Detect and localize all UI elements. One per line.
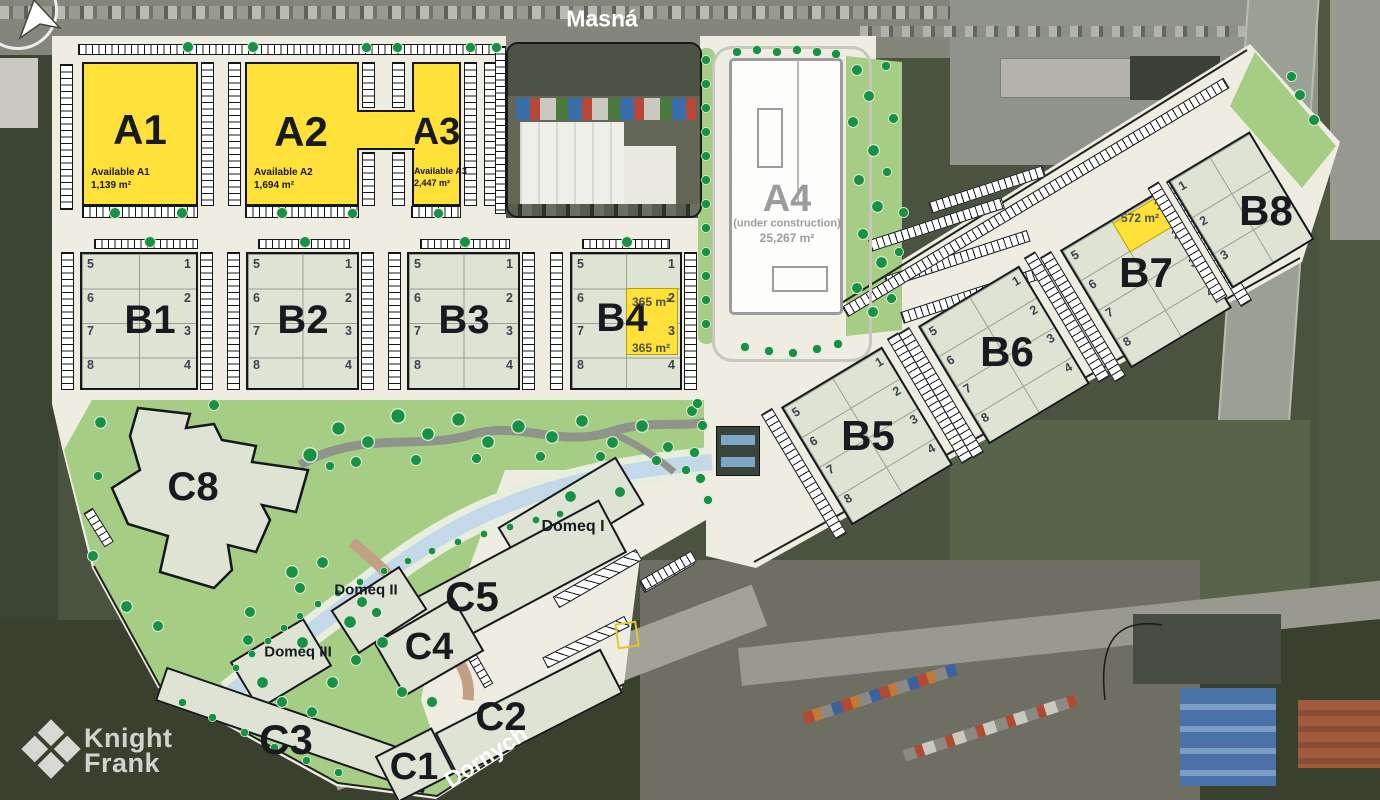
parking-a1-a2-1	[201, 62, 214, 206]
unit-number: 6	[414, 291, 421, 305]
building-b5-label: B5	[841, 415, 895, 457]
gate-highlight-box	[614, 621, 639, 650]
unit-number: 3	[506, 324, 513, 338]
building-a2-a3-connector	[357, 110, 415, 150]
building-c5-label: C5	[445, 576, 499, 618]
unit-number: 3	[1218, 248, 1231, 264]
building-c4-label: C4	[405, 628, 454, 666]
parking-b1-right	[200, 252, 213, 390]
building-b3-label: B3	[438, 300, 489, 340]
unit-number: 6	[1086, 276, 1099, 292]
a2-availability: Available A2 1,694 m²	[254, 166, 313, 192]
unit-number: 3	[184, 324, 191, 338]
unit-number: 2	[890, 383, 903, 399]
unit-number: 8	[1120, 333, 1133, 349]
unit-number: 3	[1044, 331, 1057, 347]
building-domeq3-label: Domeq III	[264, 645, 332, 660]
building-b2-label: B2	[277, 300, 328, 340]
unit-number: 2	[1027, 302, 1040, 318]
aerial-cutout	[506, 42, 702, 218]
unit-number: 8	[841, 490, 854, 506]
unit-number: 6	[577, 291, 584, 305]
unit-number: 7	[824, 462, 837, 478]
building-b6-label: B6	[980, 331, 1034, 373]
a4-inner-bay-2	[772, 266, 828, 292]
retention-structure	[716, 426, 760, 476]
unit-number: 1	[873, 354, 886, 370]
unit-number: 6	[944, 352, 957, 368]
unit-number: 3	[668, 324, 675, 338]
building-a4-label: A4	[763, 180, 812, 218]
unit-number: 5	[789, 404, 802, 420]
logo-line-2: Frank	[84, 751, 172, 776]
unit-number: 1	[506, 257, 513, 271]
parking-a2-a3-l1	[362, 152, 375, 206]
unit-number: 4	[506, 358, 513, 372]
unit-number: 2	[506, 291, 513, 305]
unit-number: 5	[926, 323, 939, 339]
building-a2-label: A2	[274, 111, 328, 153]
unit-number: 6	[807, 433, 820, 449]
unit-number: 5	[414, 257, 421, 271]
building-a4-status: (under construction)	[733, 219, 841, 230]
unit-number: 7	[1103, 305, 1116, 321]
unit-number: 5	[253, 257, 260, 271]
a3-availability: Available A3 2,447 m²	[414, 166, 467, 189]
unit-number: 3	[907, 412, 920, 428]
building-a1-label: A1	[113, 109, 167, 151]
unit-number: 2	[184, 291, 191, 305]
parking-a1-a2-2	[228, 62, 241, 206]
unit-number: 1	[1176, 178, 1189, 194]
unit-number: 4	[924, 441, 937, 457]
unit-number: 4	[1061, 360, 1074, 376]
parking-b1-left	[61, 252, 74, 390]
b4-highlight-area-1: 365 m²	[632, 295, 670, 309]
unit-number: 8	[577, 358, 584, 372]
parking-b3-top	[420, 239, 510, 249]
north-arrow-icon	[18, 0, 64, 42]
unit-number: 1	[1010, 273, 1023, 289]
unit-number: 3	[345, 324, 352, 338]
parking-b2-left	[227, 252, 240, 390]
unit-number: 7	[961, 381, 974, 397]
building-a4-area: 25,267 m²	[760, 232, 815, 244]
building-domeq1-label: Domeq I	[541, 519, 604, 535]
building-domeq2-label: Domeq II	[334, 583, 397, 598]
unit-number: 8	[87, 358, 94, 372]
b7-highlight-area: 572 m²	[1121, 211, 1159, 225]
parking-b3-right	[522, 252, 535, 390]
unit-number: 1	[668, 257, 675, 271]
unit-number: 4	[345, 358, 352, 372]
unit-number: 2	[345, 291, 352, 305]
a1-available-area: 1,139 m²	[91, 179, 150, 192]
parking-b2-top	[258, 239, 350, 249]
cutout-warehouse-2	[624, 146, 676, 204]
parking-a3-bottom	[411, 206, 461, 218]
unit-number: 2	[1197, 213, 1210, 229]
parking-a2-bottom	[245, 206, 359, 218]
parking-b1-top	[94, 239, 198, 249]
parking-b4-right	[684, 252, 697, 390]
unit-number: 7	[87, 324, 94, 338]
building-a3-label: A3	[412, 113, 461, 151]
unit-number: 7	[577, 324, 584, 338]
parking-a1-bottom	[82, 206, 198, 218]
building-b7-label: B7	[1119, 252, 1173, 294]
unit-number: 1	[184, 257, 191, 271]
cutout-containers	[516, 98, 696, 120]
unit-number: 4	[668, 358, 675, 372]
site-plan-canvas: 56781234 56781234 56781234 56781234 5678…	[0, 0, 1380, 800]
unit-number: 6	[253, 291, 260, 305]
a2-available-label: Available A2	[254, 166, 313, 179]
unit-number: 1	[345, 257, 352, 271]
a3-available-area: 2,447 m²	[414, 178, 467, 190]
a4-inner-bay-1	[757, 108, 783, 168]
building-c3-label: C3	[259, 719, 313, 761]
parking-a2-a3-l2	[392, 152, 405, 206]
parking-cutout-left	[495, 46, 506, 214]
building-c1-label: C1	[390, 748, 439, 786]
unit-number: 4	[184, 358, 191, 372]
parking-a-row-top	[78, 44, 498, 55]
parking-b4-left	[550, 252, 563, 390]
survey-contour	[1104, 624, 1162, 700]
knight-frank-logo-text: Knight Frank	[84, 726, 172, 776]
parking-b4-top	[582, 239, 670, 249]
unit-number: 8	[978, 409, 991, 425]
parking-a2-a3-u1	[362, 62, 375, 108]
parking-a1-left	[60, 64, 73, 210]
cutout-trees	[508, 44, 702, 96]
b4-highlight-area-2: 365 m²	[632, 341, 670, 355]
parking-b2-right	[361, 252, 374, 390]
building-b1-label: B1	[124, 300, 175, 340]
building-c2-label: C2	[475, 697, 526, 737]
unit-number: 7	[414, 324, 421, 338]
unit-number: 5	[1068, 247, 1081, 263]
a3-available-label: Available A3	[414, 166, 467, 178]
a2-available-area: 1,694 m²	[254, 179, 313, 192]
unit-number: 5	[87, 257, 94, 271]
retention-water-1	[721, 435, 755, 445]
retention-water-2	[721, 457, 755, 467]
a1-availability: Available A1 1,139 m²	[91, 166, 150, 192]
unit-number: 8	[414, 358, 421, 372]
unit-number: 7	[253, 324, 260, 338]
unit-number: 6	[87, 291, 94, 305]
unit-number: 8	[253, 358, 260, 372]
cutout-cars	[508, 204, 702, 218]
a1-available-label: Available A1	[91, 166, 150, 179]
building-b8-label: B8	[1239, 190, 1293, 232]
parking-a2-a3-u2	[392, 62, 405, 108]
street-label-masna: Masná	[566, 8, 638, 31]
building-c8-label: C8	[167, 467, 218, 507]
unit-number: 5	[577, 257, 584, 271]
cutout-warehouse-1	[520, 122, 624, 204]
parking-b3-left	[388, 252, 401, 390]
